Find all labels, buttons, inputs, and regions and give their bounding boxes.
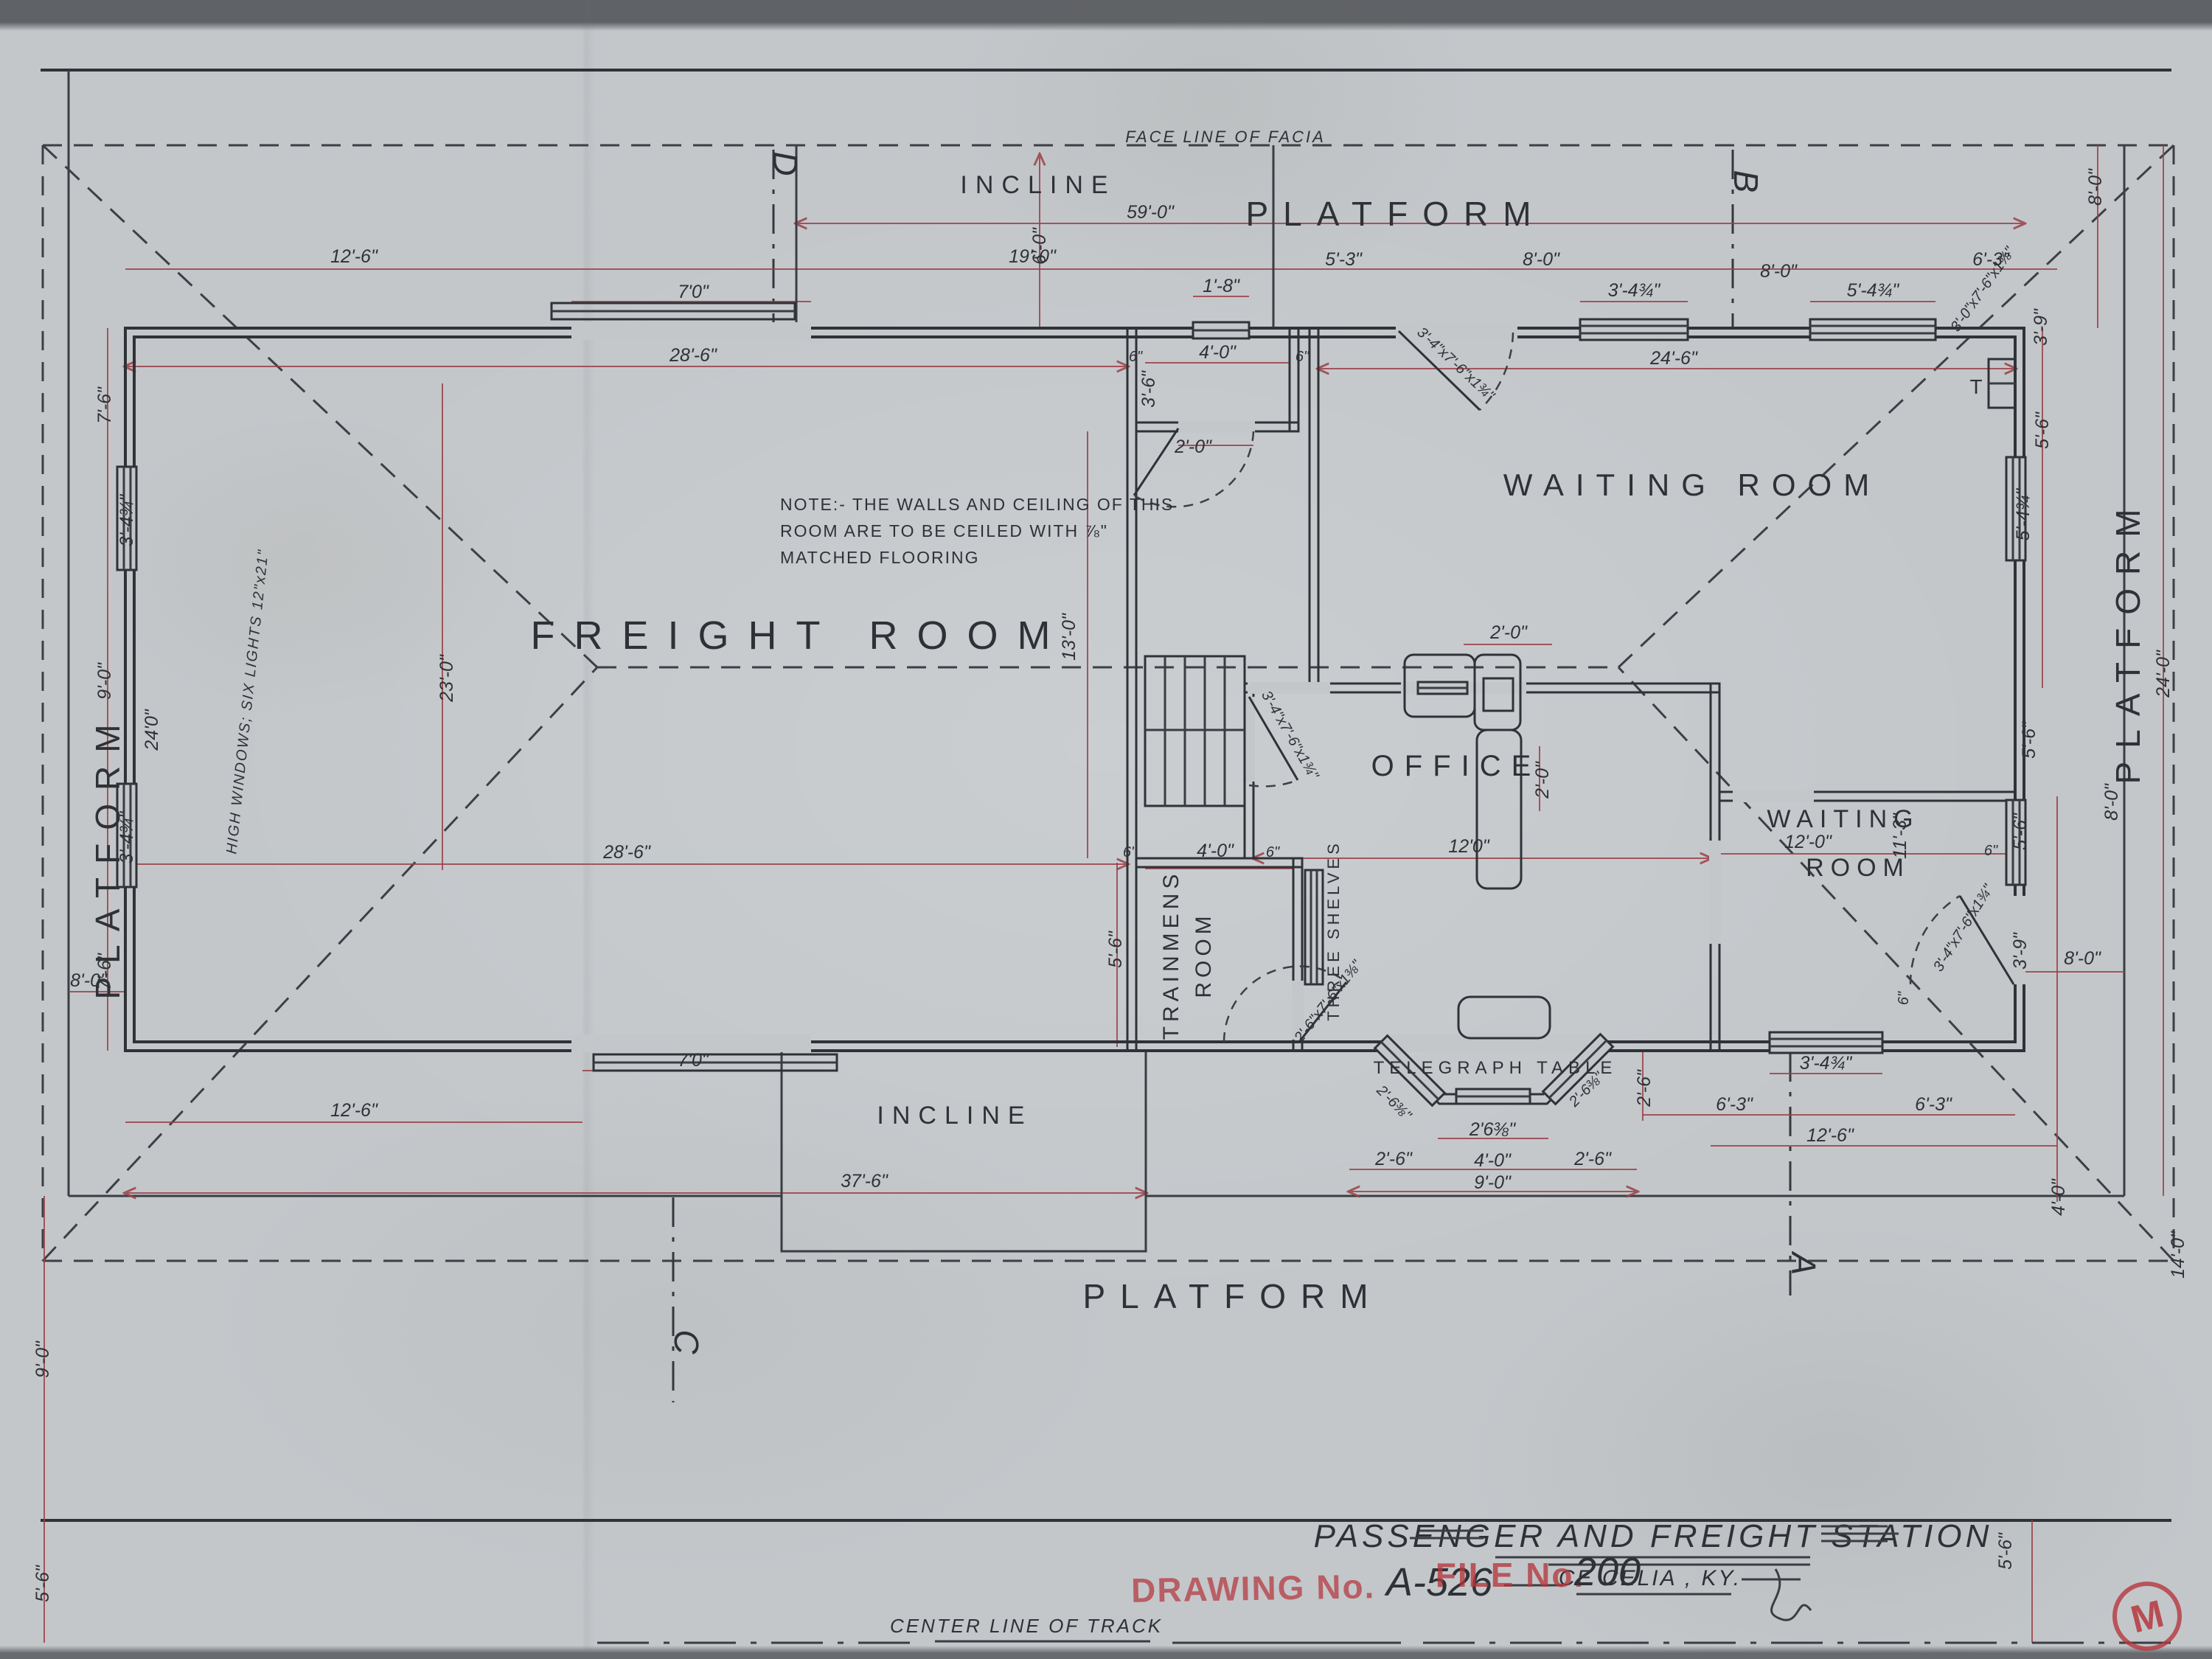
dim-6-0-incline: 6'-0"	[1029, 227, 1050, 265]
room-label-freight: FREIGHT ROOM	[530, 613, 1069, 658]
dim-12-6-top: 12'-6"	[330, 246, 378, 267]
dim-waiting-5-6-r: 5'-6"	[2010, 813, 2031, 850]
dim-desk-2-0: 2'-0"	[1489, 622, 1528, 643]
dim-8-0-a: 8'-0"	[1523, 249, 1560, 270]
dim-waiting-8-0: 8'-0"	[2064, 948, 2101, 969]
dim-bay-9-0: 9'-0"	[1474, 1172, 1512, 1193]
note-line-3: MATCHED FLOORING	[780, 548, 980, 567]
file-no-stamp-label: FILE No.	[1436, 1556, 1585, 1594]
freight-doors	[552, 303, 837, 1071]
title-block: PASSENGER AND FREIGHT STATION CE CELIA ,…	[597, 1518, 2180, 1649]
dim-bay-2-6-v: 2'-6"	[1634, 1069, 1655, 1107]
dim-bay-2-6-left: 2'-6⅜"	[1373, 1082, 1415, 1124]
section-letter-d: D	[766, 151, 804, 175]
stairs	[1145, 656, 1245, 806]
ticket-window-hatch	[1418, 682, 1467, 694]
dim-5-4-top: 5'-4¾"	[1847, 280, 1900, 301]
dim-waiting-6-a: 6"	[1984, 843, 1998, 859]
roof-eave-lines	[43, 145, 2174, 1261]
dim-right-4-0: 4'-0"	[2048, 1178, 2069, 1216]
dim-8-0-b: 8'-0"	[1760, 261, 1798, 282]
dim-28-6-top: 28'-6"	[669, 345, 717, 366]
dim-trainmens-6-a: 6"	[1123, 844, 1137, 860]
window-south-waiting	[1770, 1032, 1882, 1053]
dim-bay-2-6-center: 2'6⅜"	[1469, 1119, 1516, 1140]
incline-outlines	[782, 145, 1273, 1251]
section-letter-b: B	[1727, 170, 1765, 193]
dim-trainmens-4-0: 4'-0"	[1197, 841, 1234, 861]
label-platform-right: PLATFORM	[2109, 495, 2147, 784]
wall-openings	[118, 322, 2025, 1052]
dimension-texts: 59'-0" 12'-6" 19'-0" 5'-3" 8'-0" 8'-0" 6…	[32, 168, 2188, 1602]
dim-4-0-vestibule: 4'-0"	[1199, 342, 1237, 363]
dim-6-3-b: 6'-3"	[1915, 1094, 1952, 1115]
dim-left-7-6-a: 7'-6"	[94, 386, 115, 424]
dim-right-5-6-a: 5'-6"	[2032, 411, 2053, 449]
dim-right-3-9: 3'-9"	[2031, 308, 2051, 346]
room-label-waiting-top: WAITING ROOM	[1503, 467, 1881, 502]
label-telegraph-table: TELEGRAPH TABLE	[1374, 1058, 1618, 1078]
drawing-no-stamp-label: DRAWING No.	[1131, 1567, 1376, 1610]
dim-bottom-12-6: 12'-6"	[330, 1100, 378, 1121]
blueprint-sheet: FREIGHT ROOM WAITING ROOM OFFICE WAITING…	[0, 0, 2212, 1659]
building-walls	[125, 328, 2024, 1104]
label-platform-bottom: PLATFORM	[1082, 1277, 1382, 1315]
dim-trainmens-6-b: 6"	[1266, 844, 1280, 860]
dim-24-6: 24'-6"	[1649, 348, 1698, 369]
dim-left-8-0: 8'-0"	[70, 970, 108, 991]
dim-3-6-vestibule: 3'-6"	[1138, 370, 1159, 408]
dim-waiting-6-b: 6"	[1896, 991, 1912, 1005]
section-letter-c: C	[667, 1329, 706, 1354]
dim-right-8-0-top: 8'-0"	[2085, 168, 2106, 206]
m-monogram-letter: M	[2126, 1593, 2168, 1642]
dim-hall-13-0: 13'-0"	[1059, 613, 1079, 661]
dim-waiting-11-3: 11'-3"	[1890, 813, 1910, 859]
dim-left-3-4-a: 3'-4¾"	[116, 494, 137, 547]
room-label-trainmens-1: TRAINMENS	[1159, 870, 1183, 1040]
dim-freight-23-0: 23'-0"	[437, 654, 457, 703]
dimension-lines	[44, 145, 2163, 1643]
dim-5-3: 5'-3"	[1325, 249, 1363, 270]
note-high-windows: HIGH WINDOWS; SIX LIGHTS 12"x21"	[223, 548, 271, 855]
dim-right-24-0: 24'-0"	[2153, 650, 2174, 698]
telegraph-table-shape	[1458, 997, 1550, 1038]
label-chimney-t: T	[1969, 375, 1982, 398]
window-top-vestibule	[1193, 322, 1249, 338]
dim-right-14-0: 14'-0"	[2168, 1231, 2188, 1279]
dim-bay-4-0: 4'-0"	[1474, 1150, 1512, 1171]
dim-6in-a: 6"	[1129, 349, 1143, 365]
dim-bay-2-6-a: 2'-6"	[1374, 1149, 1413, 1169]
label-incline-top: INCLINE	[960, 171, 1116, 199]
windows	[117, 319, 2025, 1105]
dim-right-5-6-b: 5'-6"	[2019, 721, 2039, 759]
dim-office-12-0: 12'0"	[1448, 836, 1489, 857]
dim-left-24-0: 24'0"	[142, 709, 162, 751]
note-line-1: NOTE:- THE WALLS AND CEILING OF THIS	[780, 495, 1174, 514]
section-letter-a: A	[1784, 1251, 1823, 1276]
m-monogram-stamp: M	[2115, 1584, 2180, 1649]
dim-left-3-4-b: 3'-4¾"	[116, 811, 137, 864]
dim-freight-28-6: 28'-6"	[602, 842, 651, 863]
office-fixtures	[1305, 359, 2015, 1038]
window-bay-bottom	[1456, 1089, 1530, 1104]
window-top-waiting-1	[1580, 319, 1688, 340]
label-face-line: FACE LINE OF FACIA	[1125, 128, 1326, 146]
door-notes: 3'-4"x7'-6"x1¾" 3'-4"x7'-6"x1¾" 3'-4"x7'…	[1258, 243, 2018, 1046]
floor-plan-svg: FREIGHT ROOM WAITING ROOM OFFICE WAITING…	[0, 0, 2212, 1659]
center-line-label: CENTER LINE OF TRACK	[890, 1615, 1163, 1637]
dim-waiting-12-6: 12'-6"	[1806, 1125, 1854, 1146]
dim-trainmens-5-6: 5'-6"	[1105, 931, 1126, 968]
dim-2-0-door: 2'-0"	[1174, 437, 1212, 457]
dim-bottom-7-0: 7'0"	[678, 1050, 709, 1071]
dim-office-2-0-r: 2'-0"	[1532, 761, 1553, 799]
dim-left-9-0: 9'-0"	[94, 662, 115, 700]
dim-7-0-top: 7'0"	[678, 282, 709, 302]
dim-left-5-6: 5'-6"	[32, 1565, 53, 1602]
dim-bottom-37-6: 37'-6"	[841, 1171, 888, 1192]
dim-left-9-0-b: 9'-0"	[32, 1340, 53, 1378]
window-top-waiting-2	[1810, 319, 1935, 340]
room-label-office: OFFICE	[1371, 750, 1542, 782]
dim-6-3-a: 6'-3"	[1716, 1094, 1753, 1115]
signature-squiggle	[1772, 1569, 1811, 1620]
room-label-trainmens-2: ROOM	[1192, 911, 1216, 998]
dim-6in-b: 6"	[1295, 349, 1310, 365]
dim-waiting-3-4: 3'-4¾"	[1800, 1053, 1853, 1074]
dim-1-8: 1'-8"	[1203, 276, 1240, 296]
dim-right-8-0-b: 8'-0"	[2101, 783, 2122, 821]
note-line-2: ROOM ARE TO BE CEILED WITH ⅞"	[780, 521, 1108, 540]
dim-bay-2-6-b: 2'-6"	[1573, 1149, 1612, 1169]
file-no-value: 200	[1573, 1550, 1641, 1594]
chimney	[1989, 359, 2015, 408]
dim-right-5-6-c: 5'-6"	[1995, 1532, 2016, 1570]
drawing-title: PASSENGER AND FREIGHT STATION	[1314, 1518, 1993, 1554]
dim-3-4-top: 3'-4¾"	[1608, 280, 1661, 301]
dim-59-0: 59'-0"	[1127, 202, 1175, 223]
label-platform-top: PLATFORM	[1245, 195, 1545, 233]
dim-waiting-12-0: 12'-0"	[1784, 832, 1832, 852]
dim-right-5-4: 5'-4¾"	[2013, 488, 2034, 541]
dim-waiting-3-9-r: 3'-9"	[2010, 932, 2031, 970]
door-note-east: 3'-4"x7'-6"x1¾"	[1930, 881, 1997, 975]
label-incline-bottom: INCLINE	[877, 1102, 1032, 1130]
